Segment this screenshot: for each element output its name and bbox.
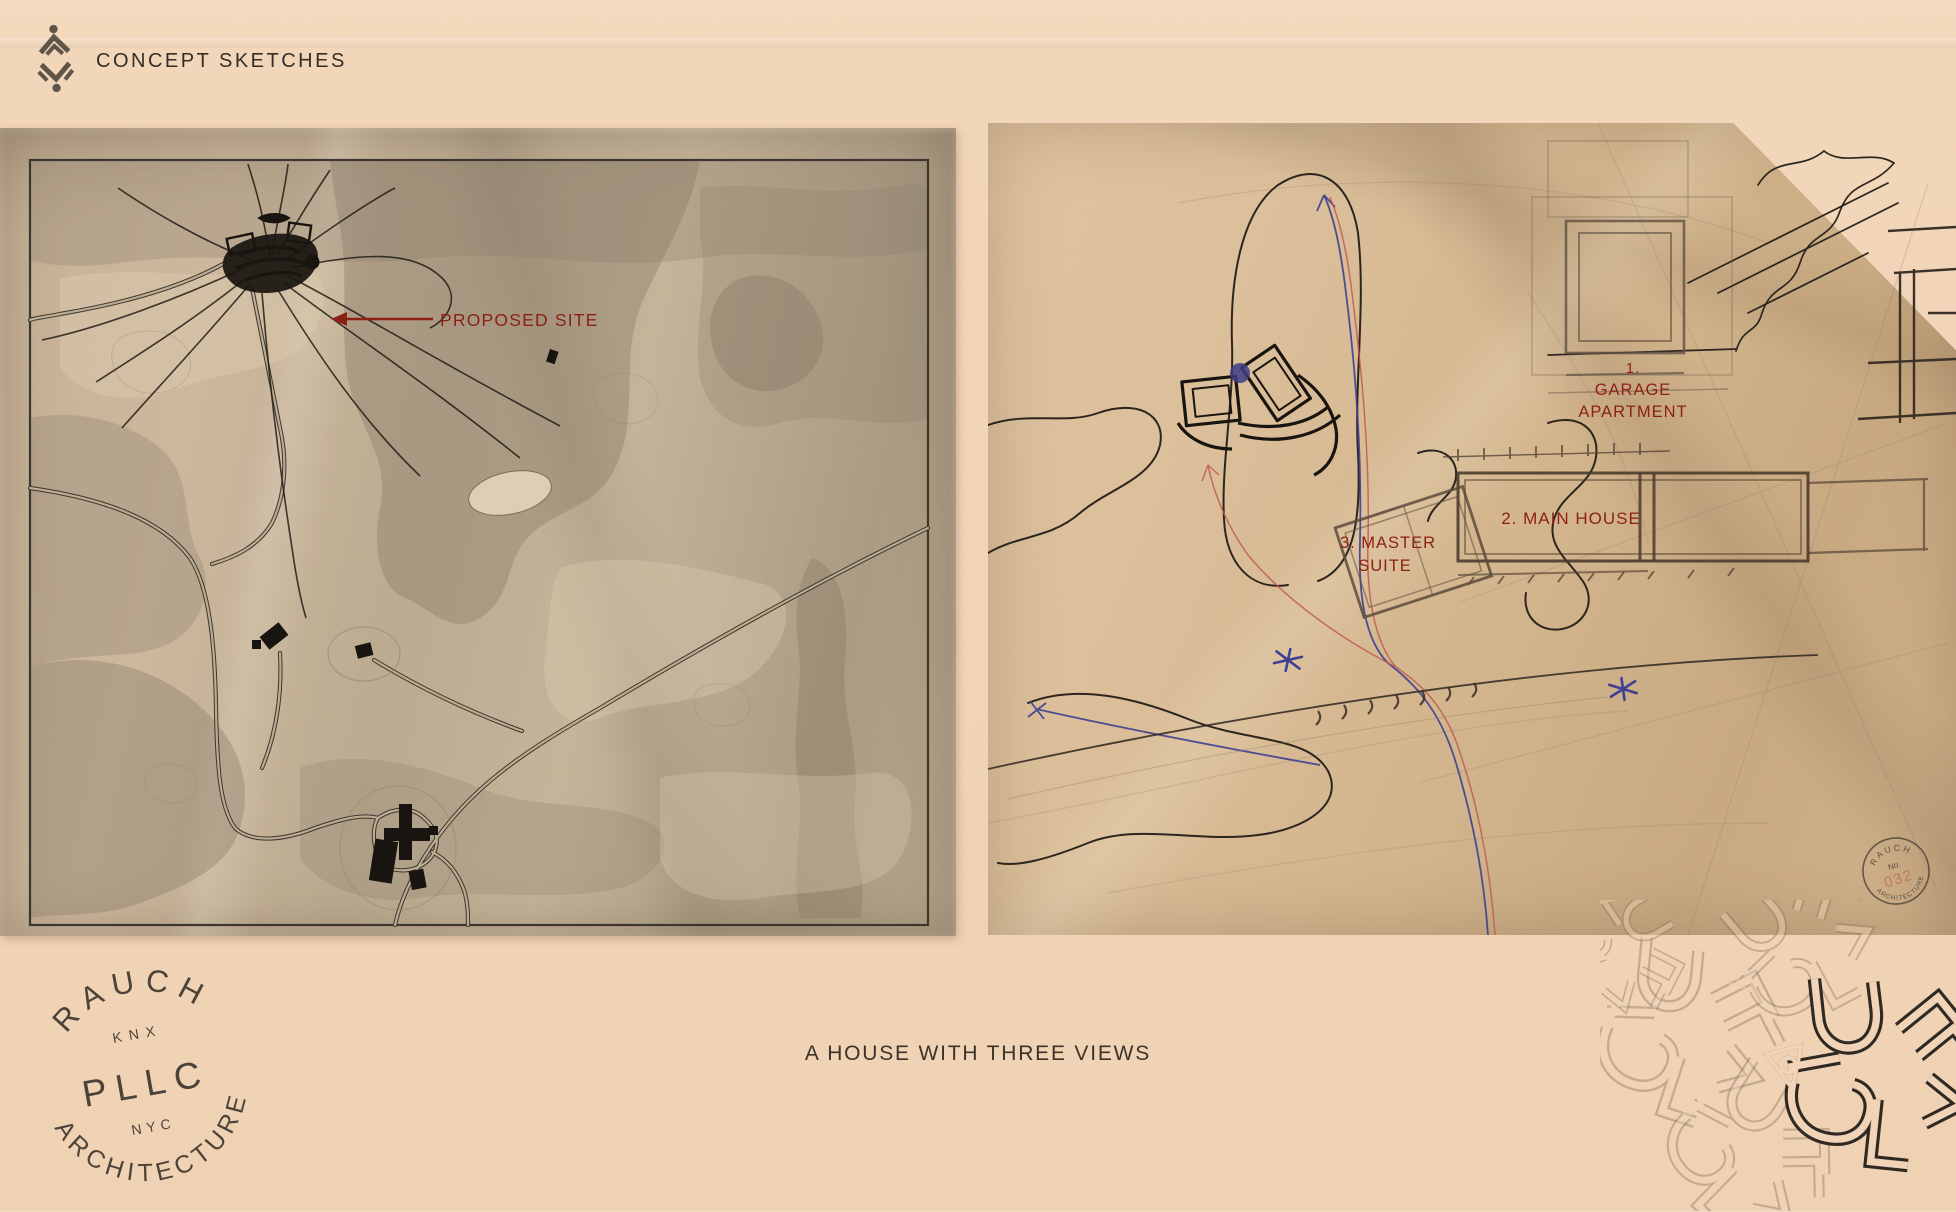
site-location-sketch-panel (0, 128, 956, 936)
stamp-knx: KNX (111, 1022, 163, 1046)
rauch-mark-bold (1757, 972, 1956, 1172)
logo-pattern (1600, 900, 1956, 1211)
site-plan-sketch-panel (988, 123, 1956, 935)
studio-stamp: RAUCH KNX PLLC NYC ARCHITECTURE (8, 950, 280, 1212)
stamp-nyc: NYC (130, 1115, 177, 1138)
paper-crease (0, 38, 1956, 48)
rauch-stamp-logo-icon (28, 22, 82, 94)
page-title: CONCEPT SKETCHES (96, 50, 347, 73)
project-title: A HOUSE WITH THREE VIEWS (805, 1042, 1151, 1066)
stamp-pllc: PLLC (79, 1052, 213, 1115)
presentation-page: { "header": { "label": "CONCEPT SKETCHES… (0, 0, 1956, 1211)
